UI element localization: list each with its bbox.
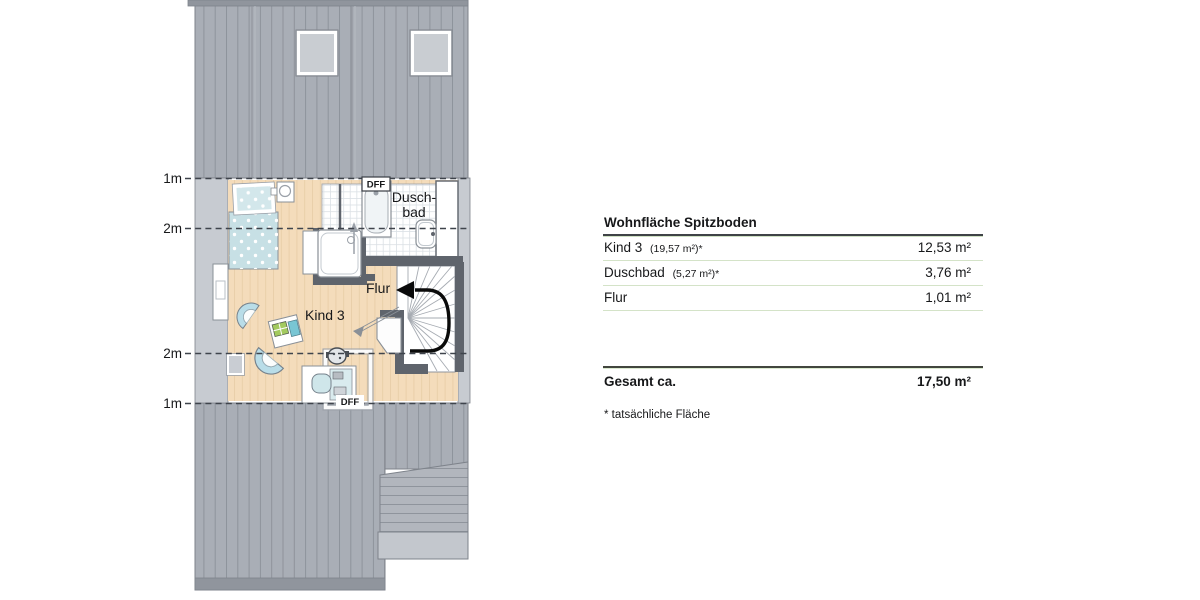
measure-label-2m-top: 2m [163,221,182,236]
skylight-left-icon [296,30,338,76]
left-window-icon [213,264,228,320]
row-name: Duschbad [604,265,665,280]
desk-chair-icon [312,374,331,393]
dff-label-top: DFF [362,177,390,191]
row-value: 1,01 m² [925,290,971,305]
floorplan-drawing: 1m 2m 2m 1m DFF DFF Kind 3 Flur Dusch- b… [0,0,1200,600]
roof-top [188,0,468,178]
room-label-kind3: Kind 3 [305,307,345,323]
table-total-row: Gesamt ca. 17,50 m² [603,366,983,395]
floorplan-page: 1m 2m 2m 1m DFF DFF Kind 3 Flur Dusch- b… [0,0,1200,600]
stairs-icon [397,266,455,372]
chimney-box-icon [227,354,245,376]
table-row: Flur 1,01 m² [603,286,983,311]
total-value: 17,50 m² [917,374,971,389]
area-table-title: Wohnfläche Spitzboden [603,215,983,236]
dormer-roof [378,462,468,559]
washbasin-icon [416,220,436,248]
room-label-flur: Flur [366,280,390,296]
measure-label-1m-top: 1m [163,171,182,186]
room-label-duschbad-line1: Dusch- [392,189,437,205]
table-row: Kind 3 (19,57 m²)* 12,53 m² [603,236,983,261]
cupboard-icon [303,231,319,274]
area-table: Wohnfläche Spitzboden Kind 3 (19,57 m²)*… [603,215,983,421]
total-label: Gesamt ca. [604,374,676,389]
measure-label-1m-bottom: 1m [163,396,182,411]
storage-strip [436,181,458,257]
table-row: Duschbad (5,27 m²)* 3,76 m² [603,261,983,286]
roof-bottom [195,403,468,590]
room-label-duschbad-line2: bad [402,204,425,220]
row-note: (19,57 m²)* [650,243,703,255]
table-spacer [603,311,983,366]
svg-text:DFF: DFF [367,180,386,191]
skylight-right-icon [410,30,452,76]
row-name: Flur [604,290,627,305]
row-name: Kind 3 [604,240,642,255]
row-value: 12,53 m² [918,240,971,255]
row-note: (5,27 m²)* [673,268,720,280]
dff-label-bottom: DFF [336,395,364,408]
row-value: 3,76 m² [925,265,971,280]
table-footnote: * tatsächliche Fläche [603,409,983,421]
svg-text:DFF: DFF [341,397,360,408]
measure-label-2m-bottom: 2m [163,346,182,361]
